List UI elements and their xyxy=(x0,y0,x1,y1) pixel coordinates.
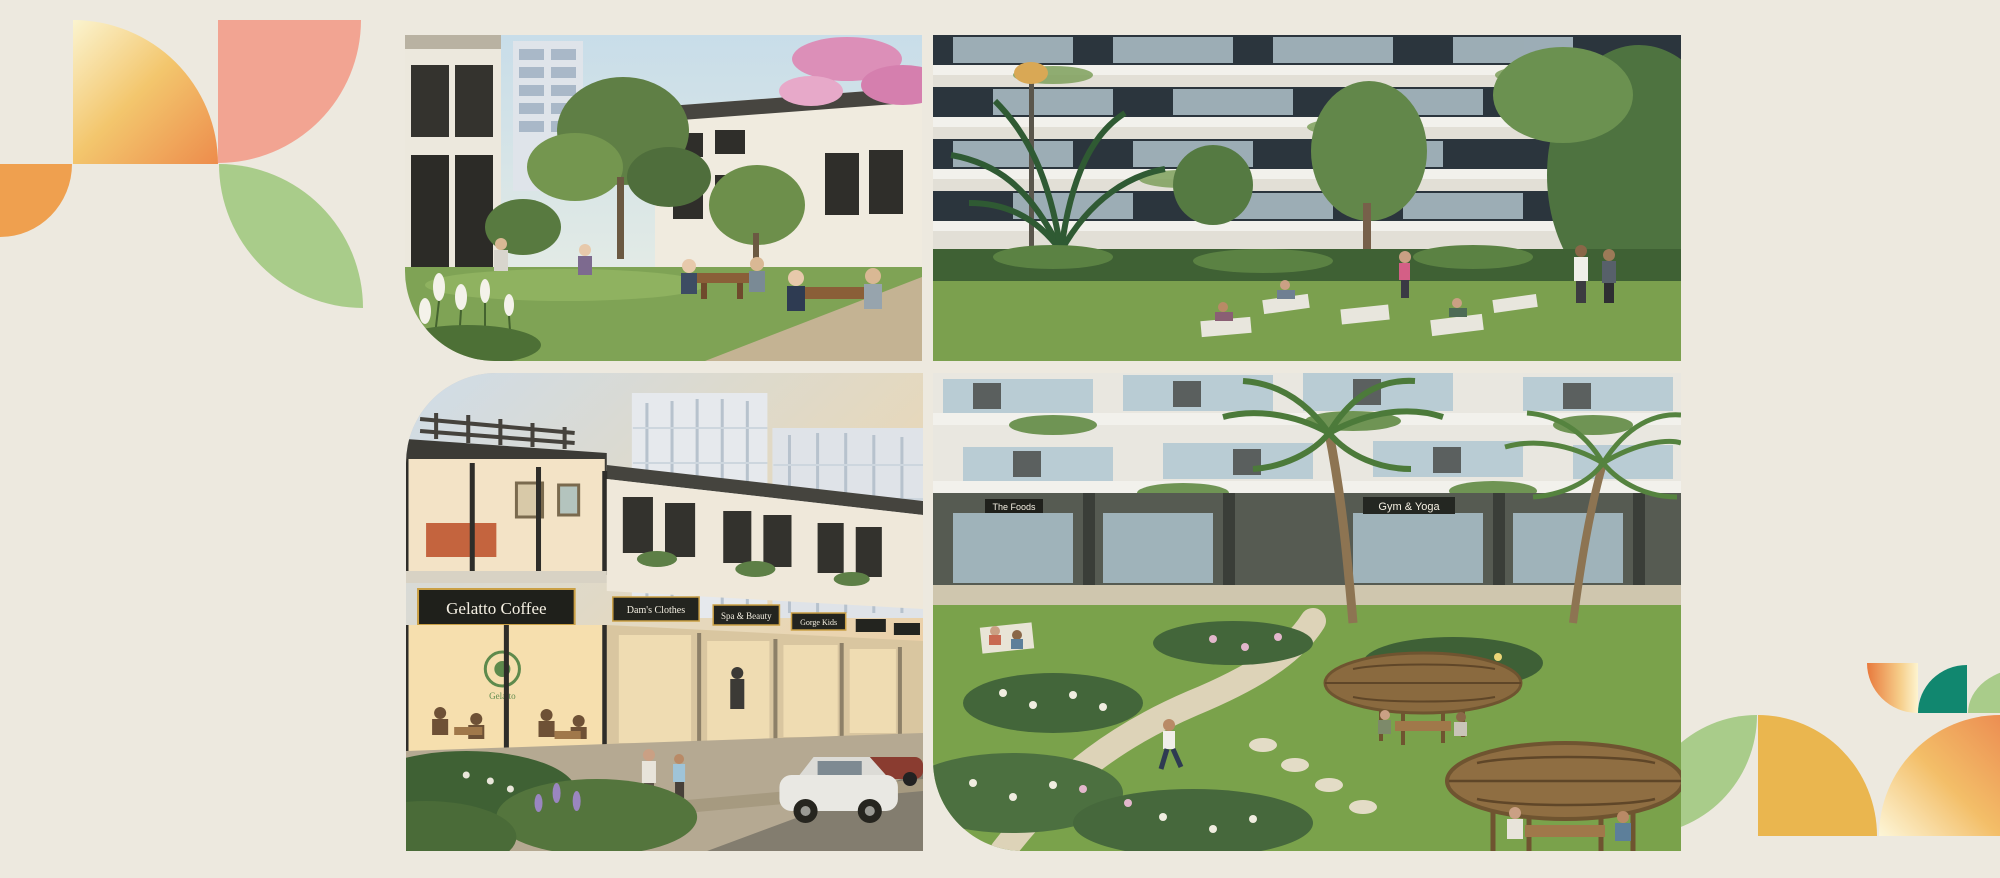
photo-garden-pavilions: The Foods Gym & Yoga xyxy=(933,373,1681,851)
sign-gorge-kids: Gorge Kids xyxy=(800,618,837,627)
left-building xyxy=(405,35,501,275)
photo-yoga-garden xyxy=(933,35,1681,361)
green-leaf-edge-shape xyxy=(1968,668,2000,713)
small-gradient-quarter-shape xyxy=(1867,663,1918,713)
yoga-garden-render xyxy=(933,35,1681,361)
orange-quarter-shape xyxy=(0,164,72,237)
gold-quarter-shape xyxy=(1758,715,1877,836)
brochure-collage: Gelatto Coffee Dam's Clothes Spa & Beaut… xyxy=(0,0,2000,878)
ground-floor-shops: The Foods Gym & Yoga xyxy=(933,493,1681,589)
sign-gym-yoga: Gym & Yoga xyxy=(1378,501,1440,513)
sign-dams-clothes: Dam's Clothes xyxy=(627,605,685,616)
sign-the-foods: The Foods xyxy=(992,502,1036,512)
gelatto-logo-text: Gelatto xyxy=(489,691,516,701)
shophouse-street-render: Gelatto Coffee Dam's Clothes Spa & Beaut… xyxy=(406,373,923,851)
terrace-walk xyxy=(933,585,1681,607)
teal-quarter-shape xyxy=(1918,665,1967,713)
green-leaf-shape xyxy=(219,164,363,308)
sign-gelatto-coffee: Gelatto Coffee xyxy=(446,599,547,618)
photo-shophouse-street: Gelatto Coffee Dam's Clothes Spa & Beaut… xyxy=(406,373,923,851)
cafe-interior: Gelatto xyxy=(406,625,607,751)
courtyard-dining-render xyxy=(405,35,922,361)
sign-spa-beauty: Spa & Beauty xyxy=(721,611,772,621)
picnic-group xyxy=(980,622,1034,653)
gradient-quarter-shape xyxy=(1879,715,2000,836)
lawn xyxy=(933,281,1681,361)
photo-courtyard-dining xyxy=(405,35,922,361)
upper-living-room xyxy=(406,459,605,575)
pink-quarter-shape xyxy=(218,20,361,163)
gradient-quarter-shape xyxy=(73,20,218,164)
garden-pavilions-render: The Foods Gym & Yoga xyxy=(933,373,1681,851)
